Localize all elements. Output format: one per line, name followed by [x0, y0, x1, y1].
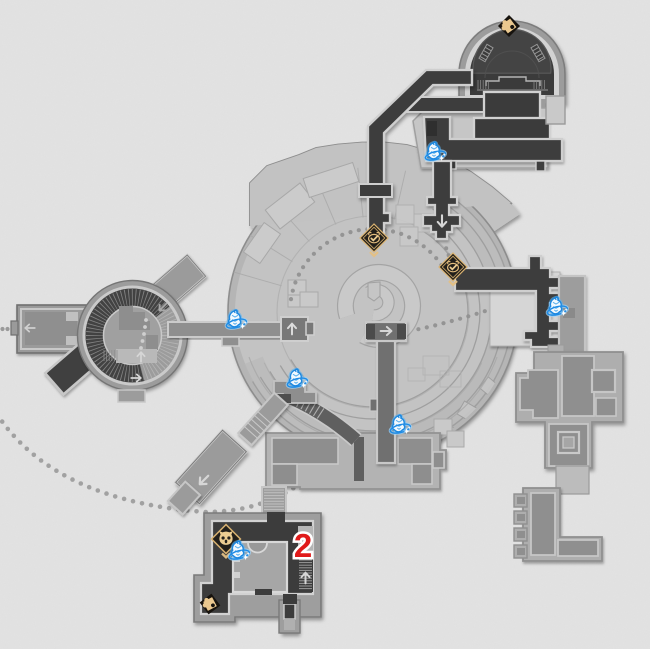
svg-text:2: 2 [294, 527, 312, 564]
